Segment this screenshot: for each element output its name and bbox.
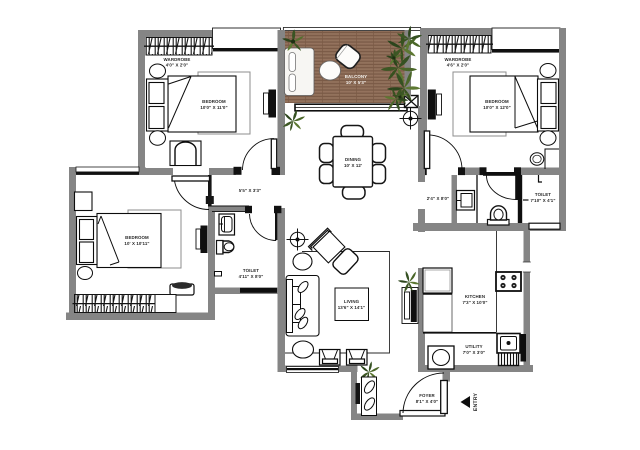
svg-text:5'5" X 3'3": 5'5" X 3'3" — [239, 188, 262, 193]
svg-text:WARDROBE: WARDROBE — [164, 57, 191, 62]
svg-text:TOILET: TOILET — [243, 268, 259, 273]
svg-text:UTILITY: UTILITY — [465, 344, 482, 349]
svg-text:13'6" X 14'1": 13'6" X 14'1" — [338, 305, 366, 310]
svg-text:WARDROBE: WARDROBE — [445, 57, 472, 62]
svg-text:10' X 5'3": 10' X 5'3" — [346, 80, 366, 85]
svg-text:7'3" X 10'0": 7'3" X 10'0" — [462, 300, 487, 305]
svg-text:DINING: DINING — [345, 157, 361, 162]
svg-text:4'11" X 8'0": 4'11" X 8'0" — [239, 274, 264, 279]
svg-text:8'1" X 4'0": 8'1" X 4'0" — [416, 399, 439, 404]
svg-text:TOILET: TOILET — [535, 192, 551, 197]
svg-text:7'10" X 4'1": 7'10" X 4'1" — [530, 198, 555, 203]
svg-text:4'6" X 2'0": 4'6" X 2'0" — [447, 63, 470, 68]
svg-text:KITCHEN: KITCHEN — [465, 294, 485, 299]
svg-text:7'0" X 3'0": 7'0" X 3'0" — [463, 350, 486, 355]
svg-text:FOYER: FOYER — [419, 393, 435, 398]
svg-text:BALCONY: BALCONY — [345, 74, 367, 79]
svg-text:10' X 10'11": 10' X 10'11" — [124, 241, 149, 246]
svg-text:ENTRY: ENTRY — [473, 392, 479, 411]
svg-text:10' X 12': 10' X 12' — [344, 163, 362, 168]
svg-text:4'0" X 2'0": 4'0" X 2'0" — [166, 63, 189, 68]
svg-text:2'4" X 8'0": 2'4" X 8'0" — [427, 196, 450, 201]
svg-text:10'0" X 11'0": 10'0" X 11'0" — [200, 105, 227, 110]
svg-text:BEDROOM: BEDROOM — [485, 99, 509, 104]
svg-text:BEDROOM: BEDROOM — [125, 235, 149, 240]
svg-text:LIVING: LIVING — [344, 299, 360, 304]
svg-text:10'0" X 12'0": 10'0" X 12'0" — [483, 105, 511, 110]
svg-text:BEDROOM: BEDROOM — [202, 99, 226, 104]
